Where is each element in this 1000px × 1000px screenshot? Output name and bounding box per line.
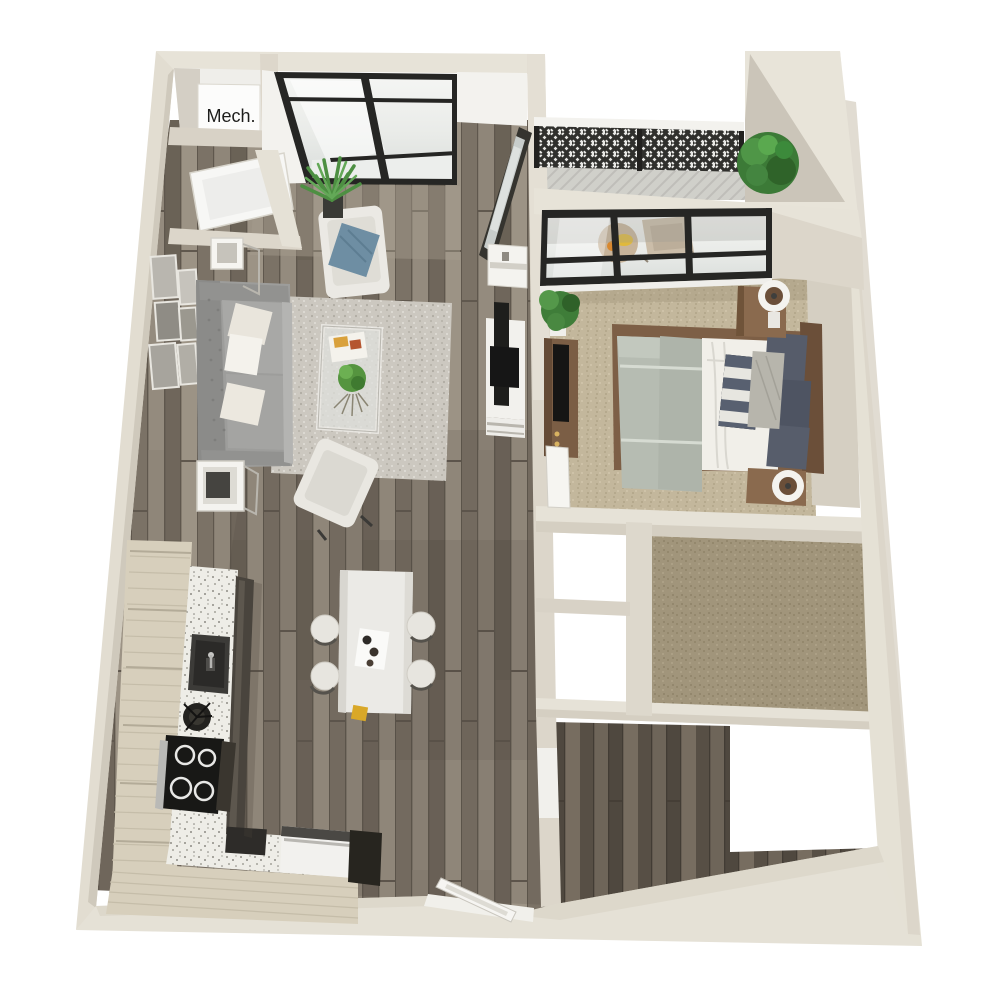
svg-text:Mech.: Mech. — [206, 106, 255, 126]
